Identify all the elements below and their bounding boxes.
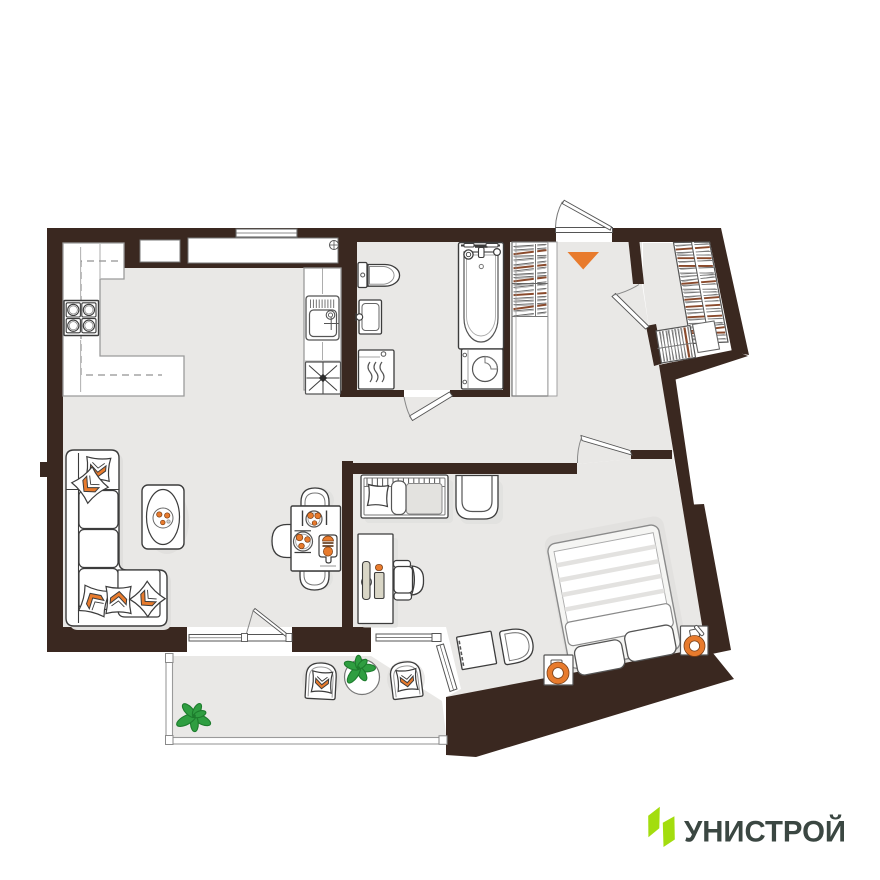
svg-text:УНИСТРОЙ: УНИСТРОЙ [684, 815, 846, 849]
